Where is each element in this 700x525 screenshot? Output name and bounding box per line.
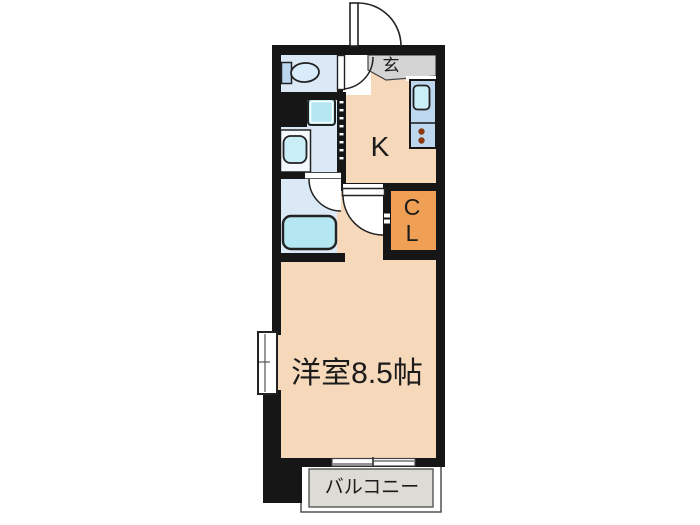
bathtub-icon	[283, 216, 336, 249]
wall-left-upper	[272, 45, 281, 335]
wall-bathroom-room	[272, 253, 345, 262]
wall-closet-bottom	[383, 250, 436, 260]
wall-left-lower	[263, 390, 281, 467]
kitchen-sink-icon	[414, 86, 430, 110]
balcony-label: バルコニー	[325, 477, 420, 498]
kitchen-label: K	[371, 131, 390, 162]
kitchen-counter	[410, 80, 436, 148]
wall-bottom-left-block	[263, 458, 302, 503]
wall-pipe-space	[281, 92, 307, 127]
vanity-sink-icon	[281, 130, 311, 172]
closet-label-c: C	[404, 194, 421, 220]
toilet-icon	[282, 62, 320, 83]
balcony-sliding-door-icon	[332, 457, 415, 467]
floor-plan: 玄 K C L 洋室8.5帖 バルコニー	[0, 0, 700, 525]
floor-plan-svg: 玄 K C L 洋室8.5帖 バルコニー	[0, 0, 700, 525]
closet-label-l: L	[406, 220, 419, 246]
wall-right	[436, 45, 445, 467]
sliding-window-icon	[258, 332, 277, 394]
entrance-door-swing-icon	[350, 3, 401, 46]
main-room-label: 洋室8.5帖	[291, 357, 423, 390]
entrance-label: 玄	[383, 56, 400, 75]
washing-machine-icon	[308, 99, 335, 125]
